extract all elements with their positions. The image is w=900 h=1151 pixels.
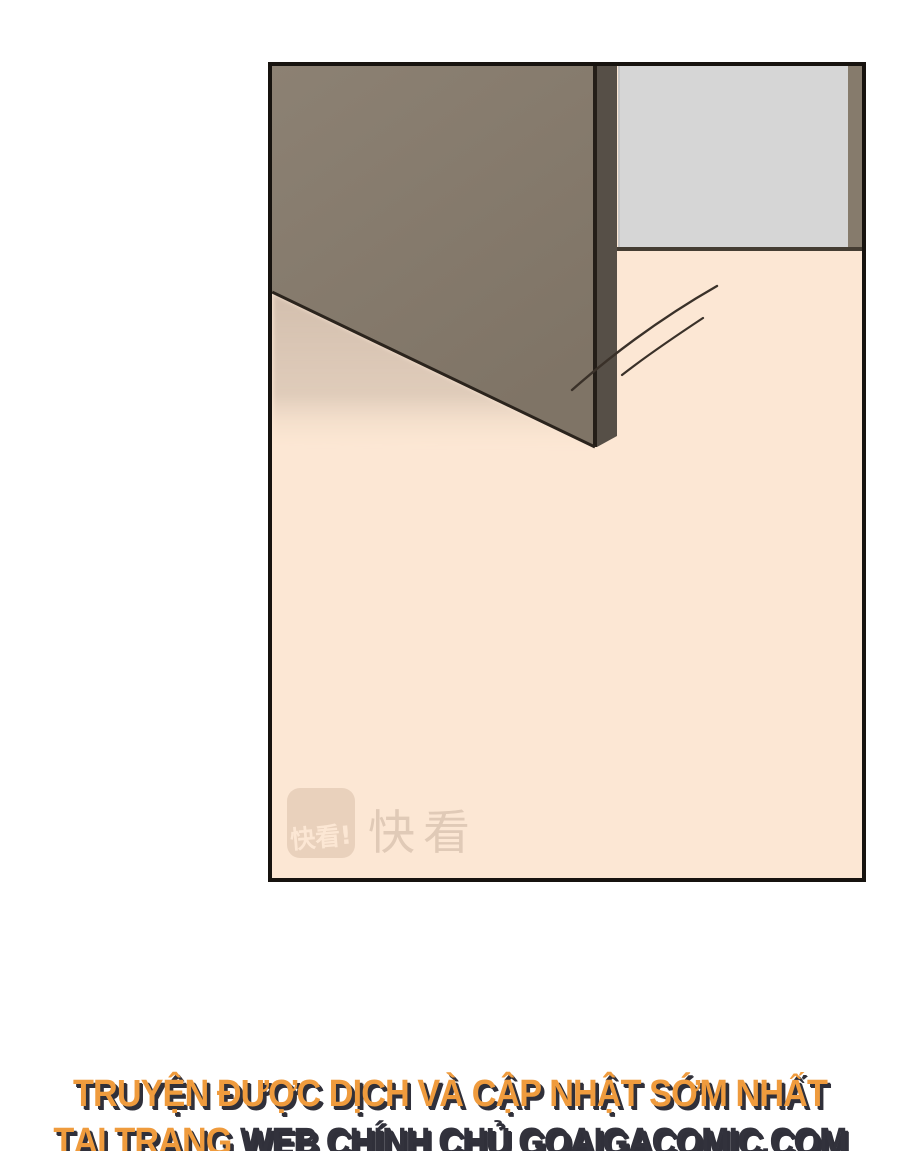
kuaikan-brand-text: 快看 bbox=[368, 806, 478, 861]
credit-banner-site-name: WEB CHÍNH CHỦ GOAIGACOMIC.COM bbox=[240, 1121, 847, 1151]
credit-banner-line-1: TRUYỆN ĐƯỢC DỊCH VÀ CẬP NHẬT SỚM NHẤT bbox=[45, 1072, 855, 1116]
wall-section bbox=[618, 66, 848, 247]
credit-banner-line-2-prefix: TẠI TRANG bbox=[53, 1121, 240, 1151]
kuaikan-logo-badge-text: 快看! bbox=[289, 820, 353, 854]
door-edge bbox=[597, 66, 617, 447]
door-frame bbox=[848, 66, 862, 247]
credit-banner-line-2: TẠI TRANG WEB CHÍNH CHỦ GOAIGACOMIC.COM bbox=[45, 1120, 855, 1151]
comic-page: 快看! 快看 TRUYỆN ĐƯỢC DỊCH VÀ CẬP NHẬT SỚM … bbox=[0, 0, 900, 1151]
comic-panel: 快看! 快看 bbox=[268, 62, 866, 882]
comic-panel-art: 快看! 快看 bbox=[272, 66, 862, 878]
